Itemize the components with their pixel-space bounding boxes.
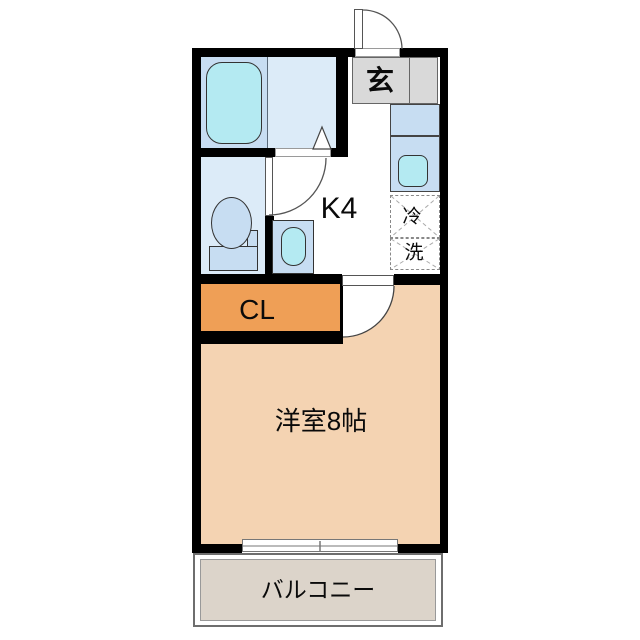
wall-closet-bottom	[192, 333, 343, 344]
washer-space-label: 洗	[404, 244, 423, 263]
entrance-doorway	[355, 48, 400, 57]
wall-bottom-left	[192, 544, 242, 553]
wall-bottom-right	[398, 544, 448, 553]
wall-bathroom-right	[336, 48, 348, 157]
main-room-label: 洋室8帖	[275, 408, 367, 434]
wall-bathroom-bottom-stub	[331, 148, 348, 157]
floor-plan: 玄 K4 冷 洗 CL 洋室8帖 バルコニー	[0, 0, 640, 640]
washbasin-bowl	[281, 227, 306, 266]
kitchen-counter	[390, 104, 440, 136]
balcony-window	[242, 539, 398, 552]
closet-label: CL	[239, 296, 275, 324]
toilet-door-arc	[269, 158, 326, 215]
entrance-area	[352, 57, 438, 104]
wall-kitchen-bottom-right	[394, 274, 440, 285]
wall-top-left	[192, 48, 355, 57]
kitchen-label: K4	[321, 194, 358, 224]
fridge-space-label: 冷	[402, 208, 421, 227]
bathroom-doorway	[275, 148, 331, 157]
main-room-door	[342, 275, 394, 286]
kitchen-sink	[398, 155, 428, 187]
toilet-door	[265, 157, 273, 216]
bathroom-floor	[268, 57, 336, 148]
entrance-label: 玄	[366, 67, 394, 95]
toilet-bowl	[211, 197, 252, 249]
wall-right	[440, 48, 448, 553]
entrance-step-line	[409, 57, 410, 104]
toilet-tank	[209, 246, 258, 271]
balcony-label: バルコニー	[261, 579, 376, 602]
bathroom-floor-divider	[267, 57, 268, 148]
bathtub	[206, 62, 262, 144]
entrance-door-arc	[363, 10, 402, 49]
wall-bathroom-bottom	[192, 148, 275, 157]
entrance-door	[354, 9, 363, 49]
